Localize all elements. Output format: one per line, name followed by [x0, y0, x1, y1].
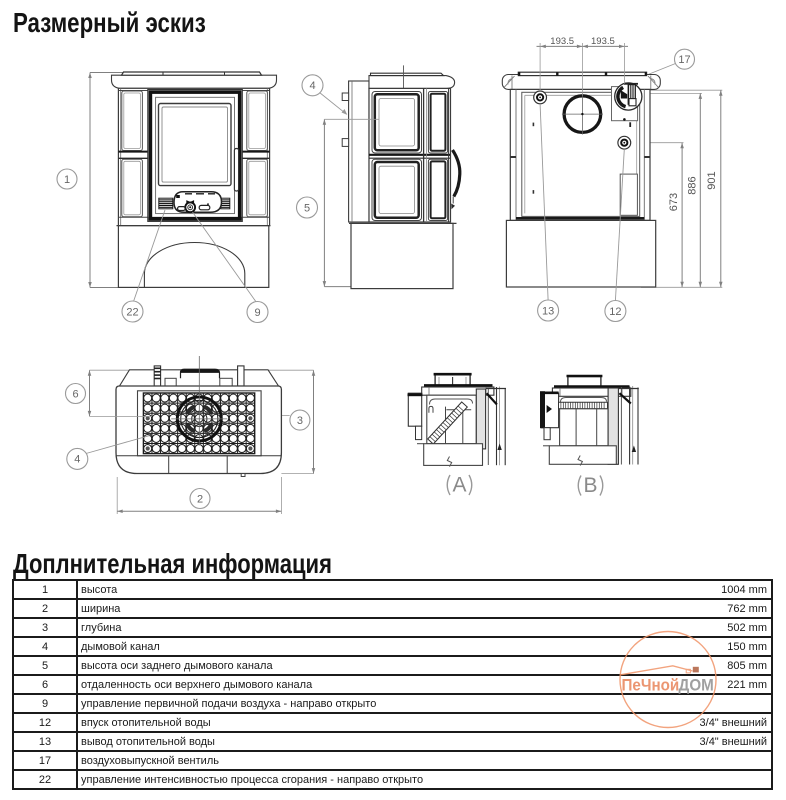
svg-text:B: B: [583, 474, 597, 497]
svg-text:A: A: [452, 474, 466, 497]
svg-text:1: 1: [64, 174, 70, 186]
svg-text:901: 901: [706, 171, 718, 189]
svg-text:9: 9: [254, 307, 260, 319]
svg-text:3: 3: [297, 415, 303, 427]
svg-text:12: 12: [609, 306, 621, 318]
svg-text:22: 22: [126, 306, 138, 318]
svg-text:886: 886: [686, 176, 698, 194]
svg-text:13: 13: [542, 305, 554, 317]
svg-text:4: 4: [74, 454, 80, 466]
svg-text:673: 673: [668, 193, 680, 211]
svg-text:17: 17: [678, 54, 690, 66]
svg-text:2: 2: [197, 493, 203, 505]
svg-text:193.5: 193.5: [550, 36, 574, 47]
svg-text:193.5: 193.5: [591, 36, 615, 47]
svg-text:6: 6: [72, 388, 78, 400]
svg-text:5: 5: [304, 202, 310, 214]
svg-text:4: 4: [309, 80, 315, 92]
